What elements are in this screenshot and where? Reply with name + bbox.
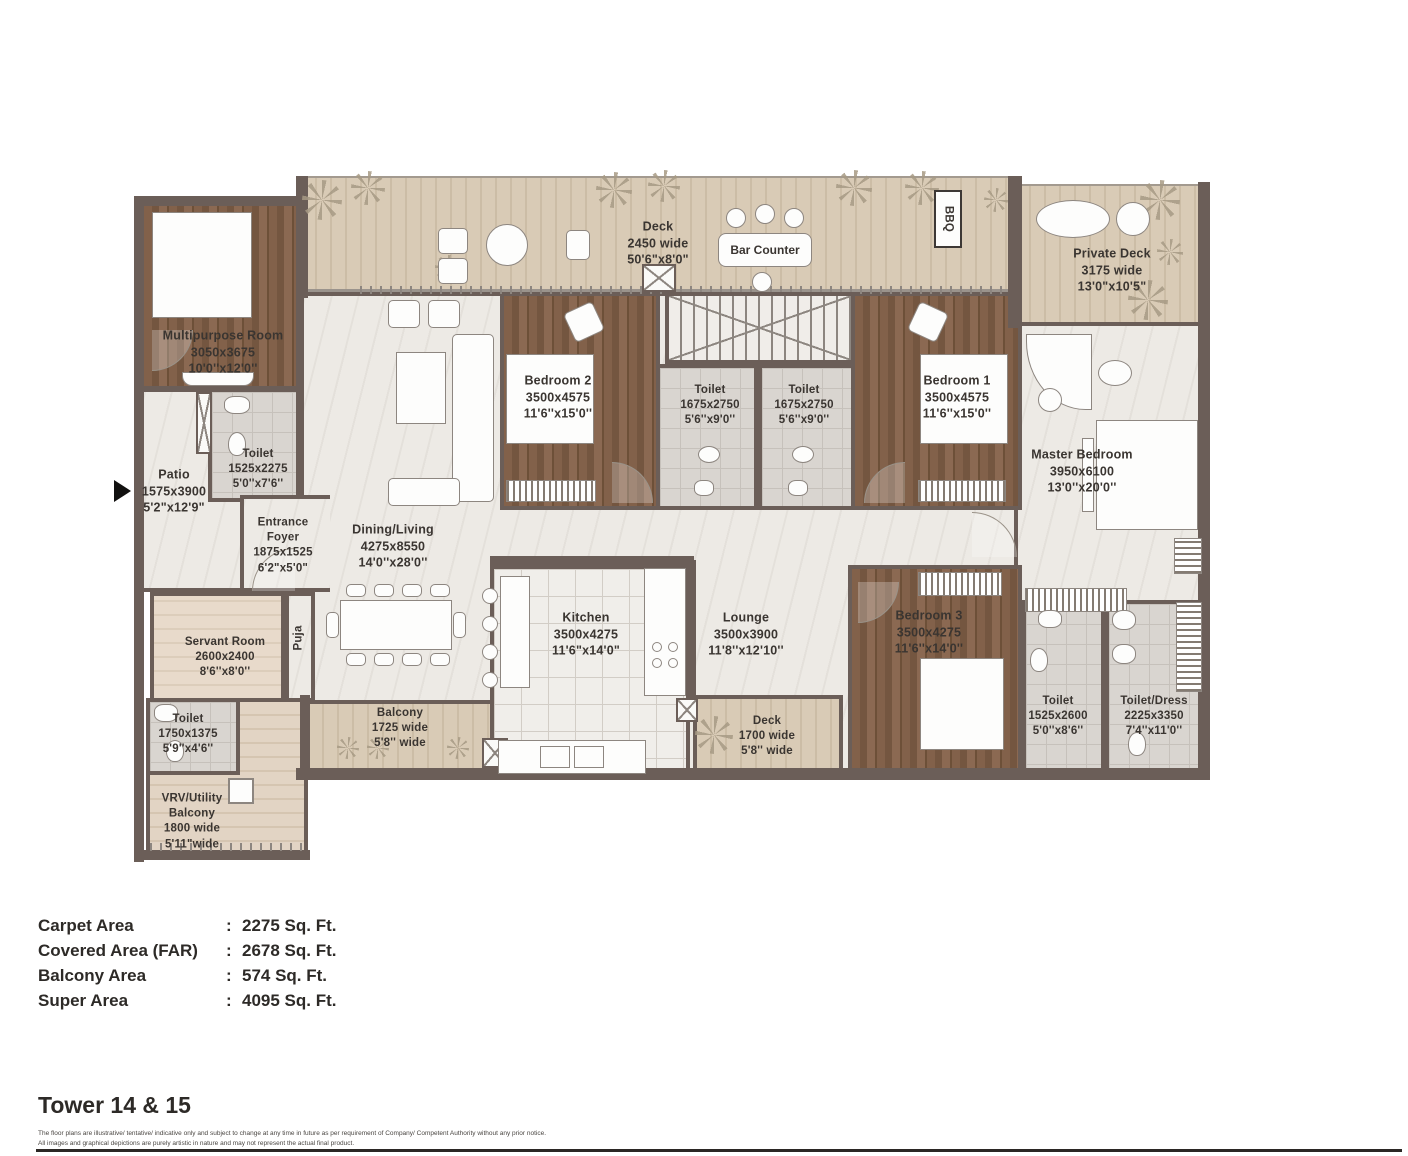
wall-top-left (134, 196, 304, 206)
room-label-patio: Patio 1575x3900 5'2"x12'9" (142, 466, 206, 516)
room-label-multipurpose: Multipurpose Room 3050x3675 10'0''x12'0'… (163, 327, 284, 377)
plant-icon (351, 171, 385, 205)
bar-stool-glyph (752, 272, 772, 292)
area-colon: : (226, 941, 242, 961)
dining-chair-glyph (430, 584, 450, 597)
sink-glyph (788, 480, 808, 496)
dining-chair-glyph (326, 612, 339, 638)
coffee-table-glyph (396, 352, 446, 424)
area-row: Covered Area (FAR) : 2678 Sq. Ft. (38, 941, 336, 966)
staircase (665, 292, 855, 364)
plant-icon (695, 716, 733, 754)
area-label: Carpet Area (38, 916, 226, 936)
room-label-private-deck: Private Deck 3175 wide 13'0"x10'5" (1073, 245, 1150, 295)
deck-stool-glyph (566, 230, 590, 260)
room-label-bedroom3: Bedroom 3 3500x4275 11'6''x14'0'' (895, 607, 963, 657)
room-label-master-bedroom: Master Bedroom 3950x6100 13'0''x20'0'' (1031, 446, 1132, 496)
wardrobe (918, 572, 1002, 596)
armchair-glyph (388, 300, 420, 328)
wall-balcony-left (300, 695, 310, 775)
plant-icon (302, 180, 342, 220)
disclaimer-line: The floor plans are illustrative/ tentat… (38, 1129, 546, 1139)
area-value: 2678 Sq. Ft. (242, 941, 336, 961)
dining-chair-glyph (346, 653, 366, 666)
plant-icon (337, 737, 359, 759)
kitchen-stool-glyph (482, 588, 498, 604)
wall-deck-right (1008, 176, 1022, 328)
side-table-glyph (1098, 360, 1132, 386)
armchair-glyph (428, 300, 460, 328)
area-colon: : (226, 991, 242, 1011)
wall-kitchen-top (490, 556, 694, 566)
tower-title: Tower 14 & 15 (38, 1092, 191, 1119)
wc-glyph (1030, 648, 1048, 672)
sink-glyph (540, 746, 570, 768)
wall-outer-bottom (296, 768, 1210, 780)
toilet-bedroom3-floor (1022, 600, 1105, 778)
sink-glyph (1112, 644, 1136, 664)
area-label: Covered Area (FAR) (38, 941, 226, 961)
kitchen-counter-glyph (498, 740, 646, 774)
sink-glyph (1112, 610, 1136, 630)
sofa-glyph (452, 334, 494, 502)
room-label-kitchen: Kitchen 3500x4275 11'6"x14'0" (552, 609, 620, 659)
plant-icon (648, 170, 680, 202)
room-label-toilet-multipurpose: Toilet 1525x2275 5'0''x7'6'' (228, 447, 287, 493)
dining-chair-glyph (453, 612, 466, 638)
room-label-dining-living: Dining/Living 4275x8550 14'0''x28'0'' (352, 521, 434, 571)
dining-chair-glyph (402, 584, 422, 597)
sink-glyph (224, 396, 250, 414)
planter-glyph (1116, 202, 1150, 236)
bed-glyph (920, 658, 1004, 750)
room-label-toilet-center-2: Toilet 1675x2750 5'6''x9'0'' (774, 383, 833, 429)
washing-machine-glyph (228, 778, 254, 804)
entry-arrow-icon (114, 480, 131, 502)
deck-table-glyph (486, 224, 528, 266)
room-label-balcony: Balcony 1725 wide 5'8'' wide (372, 706, 428, 752)
wc-glyph (792, 446, 814, 463)
area-value: 4095 Sq. Ft. (242, 991, 336, 1011)
bar-stool-glyph (726, 208, 746, 228)
dining-table-glyph (340, 600, 452, 650)
disclaimer: The floor plans are illustrative/ tentat… (38, 1129, 546, 1150)
room-label-toilet-bedroom3: Toilet 1525x2600 5'0''x8'6'' (1028, 694, 1087, 740)
kitchen-stool-glyph (482, 616, 498, 632)
deck-chair-glyph (438, 228, 468, 254)
hob-burner-glyph (652, 642, 662, 652)
area-label: Balcony Area (38, 966, 226, 986)
shaft-xbox-patio (196, 392, 212, 454)
hob-burner-glyph (668, 642, 678, 652)
room-label-lounge: Lounge 3500x3900 11'8''x12'10'' (708, 609, 784, 659)
wall-kitchen-lounge (686, 560, 696, 702)
area-value: 574 Sq. Ft. (242, 966, 327, 986)
room-label-bedroom1: Bedroom 1 3500x4575 11'6''x15'0'' (923, 372, 991, 422)
area-label: Super Area (38, 991, 226, 1011)
area-colon: : (226, 916, 242, 936)
bar-counter-label: Bar Counter (730, 243, 799, 257)
area-row: Super Area : 4095 Sq. Ft. (38, 991, 336, 1016)
area-colon: : (226, 966, 242, 986)
shaft-xbox-deck (642, 264, 676, 292)
room-label-puja: Puja (291, 625, 306, 650)
room-label-entrance-foyer: Entrance Foyer 1875x1525 6'2"x5'0" (253, 516, 312, 577)
kitchen-counter-glyph (644, 568, 686, 696)
hob-burner-glyph (652, 658, 662, 668)
plant-icon (984, 188, 1008, 212)
shaft-xbox-deck-small (676, 698, 698, 722)
bed-glyph (152, 212, 252, 318)
sofa-glyph (388, 478, 460, 506)
room-label-bedroom2: Bedroom 2 3500x4575 11'6''x15'0'' (524, 372, 592, 422)
hob-burner-glyph (668, 658, 678, 668)
dining-chair-glyph (374, 653, 394, 666)
planter-glyph (1036, 200, 1110, 238)
plant-icon (596, 172, 632, 208)
floor-plan-page: Bar Counter BBQ (0, 0, 1408, 1156)
wall-outer-left (134, 196, 144, 862)
wardrobe (918, 480, 1006, 502)
area-row: Balcony Area : 574 Sq. Ft. (38, 966, 336, 991)
kitchen-island-glyph (500, 576, 530, 688)
dining-chair-glyph (346, 584, 366, 597)
room-label-deck-top: Deck 2450 wide 50'6"x8'0" (627, 218, 689, 268)
area-row: Carpet Area : 2275 Sq. Ft. (38, 916, 336, 941)
sink-glyph (1038, 610, 1062, 628)
bbq-label: BBQ (940, 206, 955, 232)
room-label-deck-small: Deck 1700 wide 5'8'' wide (739, 714, 795, 760)
dining-chair-glyph (374, 584, 394, 597)
dining-chair-glyph (402, 653, 422, 666)
pouf-glyph (1038, 388, 1062, 412)
bar-stool-glyph (784, 208, 804, 228)
footer-rule (36, 1149, 1402, 1152)
plant-icon (447, 737, 469, 759)
room-label-toilet-center-1: Toilet 1675x2750 5'6''x9'0'' (680, 383, 739, 429)
wardrobe (506, 480, 596, 502)
area-value: 2275 Sq. Ft. (242, 916, 336, 936)
room-label-servant-room: Servant Room 2600x2400 8'6''x8'0'' (185, 635, 265, 681)
sink-glyph (574, 746, 604, 768)
kitchen-stool-glyph (482, 672, 498, 688)
wc-glyph (698, 446, 720, 463)
room-label-toilet-servant: Toilet 1750x1375 5'9''x4'6'' (158, 712, 217, 758)
room-label-vrv-utility: VRV/Utility Balcony 1800 wide 5'11"wide (162, 792, 223, 853)
plant-icon (1157, 239, 1183, 265)
wardrobe (1174, 538, 1202, 574)
area-summary: Carpet Area : 2275 Sq. Ft. Covered Area … (38, 916, 336, 1016)
wardrobe (1176, 602, 1202, 692)
wardrobe (1025, 588, 1127, 612)
room-label-toilet-dress: Toilet/Dress 2225x3350 7'4''x11'0'' (1120, 694, 1187, 740)
plant-icon (836, 170, 872, 206)
deck-chair-glyph (438, 258, 468, 284)
kitchen-stool-glyph (482, 644, 498, 660)
dining-chair-glyph (430, 653, 450, 666)
sink-glyph (694, 480, 714, 496)
bar-stool-glyph (755, 204, 775, 224)
